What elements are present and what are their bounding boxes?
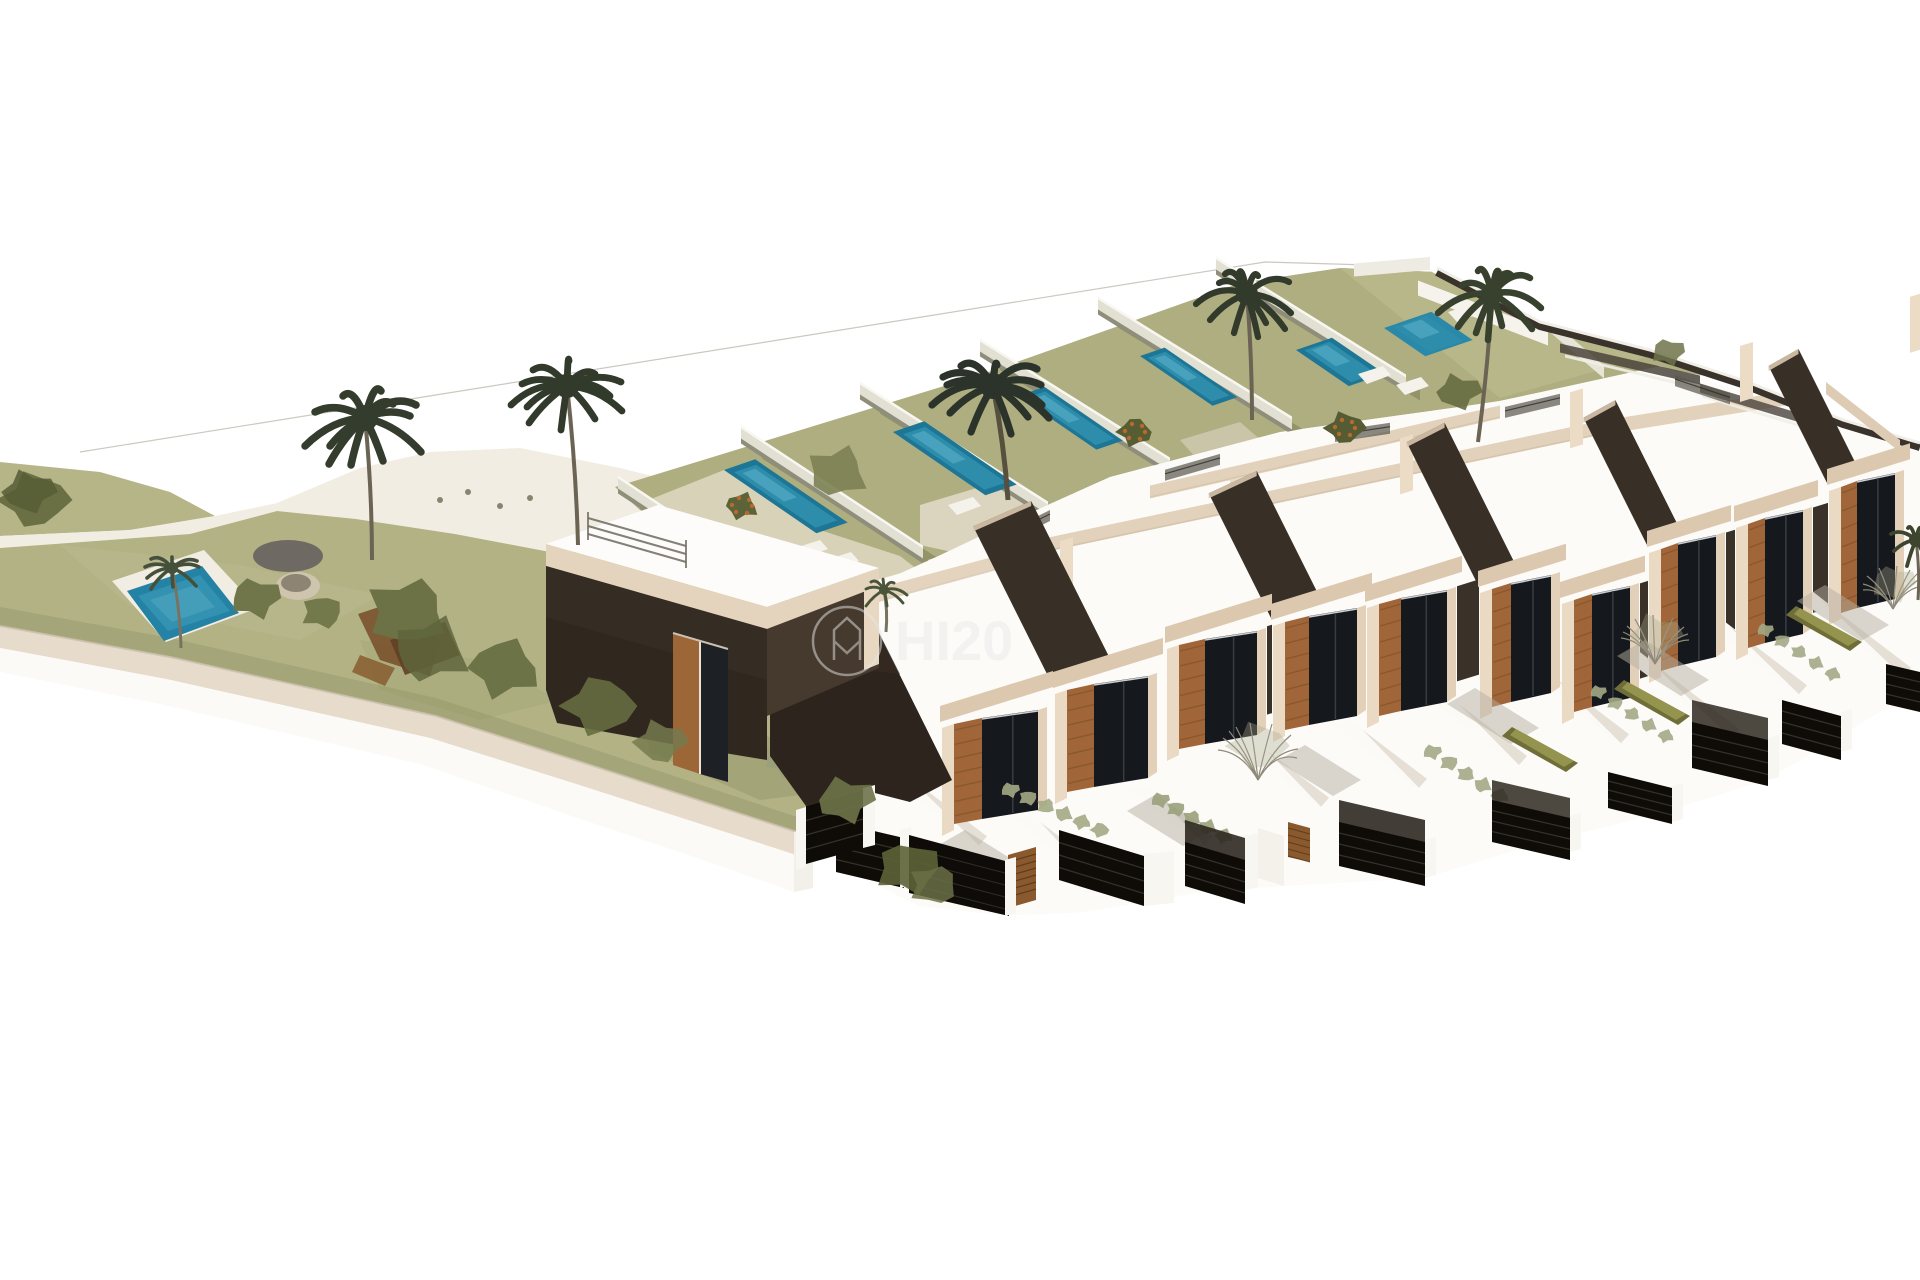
svg-text:HI20: HI20 <box>895 609 1013 672</box>
